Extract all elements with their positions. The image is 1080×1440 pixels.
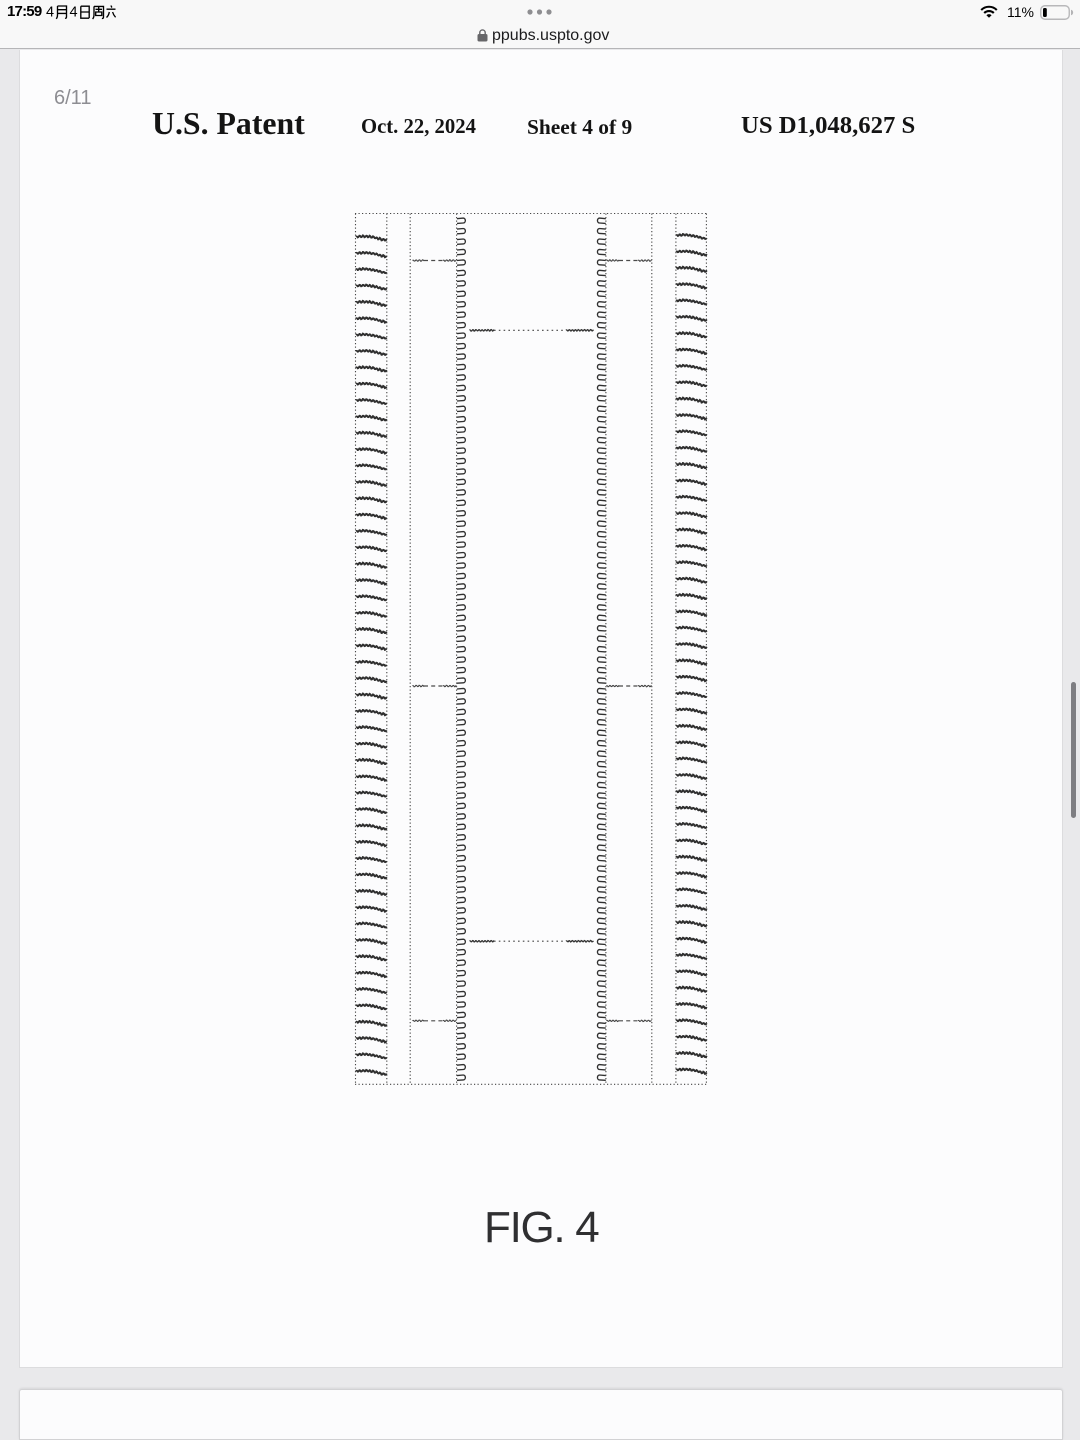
- svg-text:4: 4: [70, 5, 78, 21]
- svg-text:4: 4: [46, 5, 54, 21]
